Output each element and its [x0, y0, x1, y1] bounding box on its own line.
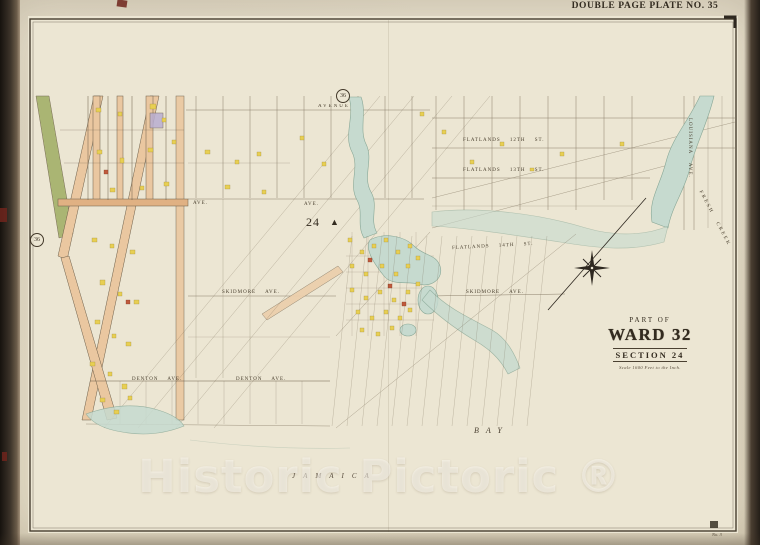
- street-label-denton-east: DENTON AVE.: [236, 377, 286, 382]
- street-label-ave: AVE.: [193, 201, 208, 206]
- street-label-flatlands-12th: FLATLANDS 12TH ST.: [463, 138, 545, 143]
- title-part-of: PART OF: [596, 316, 704, 324]
- title-scale: Scale 1600 Feet to the Inch.: [596, 365, 704, 370]
- title-section: SECTION 24: [613, 348, 688, 362]
- street-label-ave: AVE.: [304, 202, 319, 207]
- adjacent-plate-ref-top: 36: [336, 89, 350, 103]
- street-label-avenue: AVENUE: [318, 104, 350, 109]
- ink-speck: [2, 452, 7, 461]
- street-label-skidmore-east: SKIDMORE AVE.: [466, 290, 524, 295]
- scanned-atlas-page: DOUBLE PAGE PLATE NO. 35 36 36 24 ▲ AVEN…: [0, 0, 760, 545]
- ink-speck: [117, 0, 128, 8]
- district-number: 24 ▲: [306, 215, 339, 230]
- street-label-denton-west: DENTON AVE.: [132, 377, 182, 382]
- scan-shadow-bottom: [0, 533, 760, 545]
- title-ward: WARD 32: [596, 325, 704, 345]
- book-binding-left: [0, 0, 20, 545]
- street-label-skidmore-west: SKIDMORE AVE.: [222, 290, 280, 295]
- district-number-value: 24: [306, 215, 320, 230]
- map-title-block: PART OF WARD 32 SECTION 24 Scale 1600 Fe…: [596, 316, 704, 370]
- watermark-text: Historic Pictoric ®: [100, 450, 660, 503]
- plate-title: DOUBLE PAGE PLATE NO. 35: [560, 1, 730, 11]
- water-label-bay: BAY: [474, 426, 509, 435]
- street-label-louisiana-ave: LOUISIANA AVE.: [687, 118, 692, 178]
- survey-triangle-icon: ▲: [330, 218, 339, 227]
- adjacent-plate-ref-left: 36: [30, 233, 44, 247]
- book-binding-right: [744, 0, 760, 545]
- street-label-flatlands-13th: FLATLANDS 13TH ST.: [463, 168, 545, 173]
- corner-plate-note: No. 3: [712, 532, 722, 537]
- ink-speck: [0, 208, 7, 222]
